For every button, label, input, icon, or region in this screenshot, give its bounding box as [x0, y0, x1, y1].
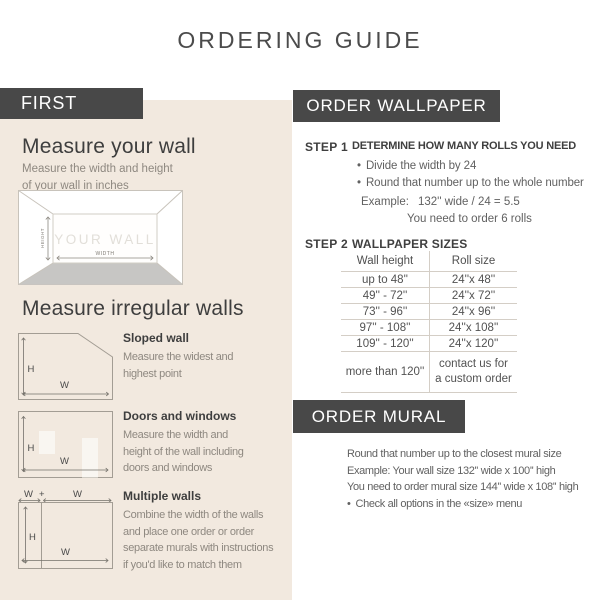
table-row: 49'' - 72'' 24''x 72''	[341, 288, 517, 304]
irregular-walls-heading: Measure irregular walls	[22, 297, 244, 321]
step1-example-result: You need to order 6 rolls	[407, 213, 532, 225]
bullet-icon: •	[357, 177, 361, 189]
doors-windows-item: Doors and windows Measure the width and …	[123, 409, 301, 477]
step1-bullet-1: •Divide the width by 24	[357, 160, 476, 172]
ordering-guide-page: ORDERING GUIDE FIRST ORDER WALLPAPER ORD…	[0, 0, 600, 600]
table-cell: 73'' - 96''	[341, 304, 429, 319]
example-value: 132'' wide / 24 = 5.5	[418, 196, 520, 208]
sloped-wall-item: Sloped wall Measure the widest and highe…	[123, 331, 301, 382]
mural-line: You need to order mural size 144'' wide …	[347, 479, 578, 496]
w-label: W	[24, 489, 33, 500]
table-cell: more than 120''	[341, 352, 429, 392]
mural-instructions: Round that number up to the closest mura…	[347, 446, 578, 512]
first-badge: FIRST	[0, 88, 143, 119]
first-badge-label: FIRST	[21, 93, 77, 114]
mural-bullet-line: •Check all options in the «size» menu	[347, 496, 578, 513]
mural-line: Example: Your wall size 132'' wide x 100…	[347, 463, 578, 480]
table-cell: 24''x 96''	[429, 304, 517, 319]
order-wallpaper-badge: ORDER WALLPAPER	[293, 90, 500, 122]
step2-label: STEP 2	[305, 237, 348, 251]
step1-label: STEP 1	[305, 140, 348, 154]
w-label: W	[73, 489, 82, 500]
h-label: H	[28, 364, 35, 375]
example-label: Example:	[361, 196, 409, 208]
sloped-wall-diagram: H W	[18, 333, 113, 400]
h-label: H	[29, 532, 36, 543]
table-row: 73'' - 96'' 24''x 96''	[341, 304, 517, 320]
page-title: ORDERING GUIDE	[0, 27, 600, 54]
bullet-icon: •	[347, 498, 351, 510]
table-cell: contact us for a custom order	[429, 352, 517, 392]
table-cell: up to 48''	[341, 272, 429, 287]
table-row: 97'' - 108'' 24''x 108''	[341, 320, 517, 336]
order-wallpaper-label: ORDER WALLPAPER	[306, 96, 486, 116]
w-label: W	[60, 380, 69, 391]
step1-bullet-2: •Round that number up to the whole numbe…	[357, 177, 584, 189]
step2-heading: WALLPAPER SIZES	[352, 237, 467, 251]
order-mural-badge: ORDER MURAL	[293, 400, 465, 433]
table-cell: 24''x 120''	[429, 336, 517, 351]
window-shape	[39, 431, 55, 454]
table-row: up to 48'' 24''x 48''	[341, 272, 517, 288]
plus-label: +	[39, 489, 45, 500]
w-label: W	[60, 456, 69, 467]
table-header-cell: Roll size	[429, 251, 517, 271]
height-arrow-label: HEIGHT	[40, 228, 45, 248]
bullet-icon: •	[357, 160, 361, 172]
multiple-walls-item: Multiple walls Combine the width of the …	[123, 489, 301, 573]
step1-heading: DETERMINE HOW MANY ROLLS YOU NEED	[352, 140, 576, 152]
measure-wall-heading: Measure your wall	[22, 135, 196, 159]
mural-line: Round that number up to the closest mura…	[347, 446, 578, 463]
door-shape	[82, 438, 98, 478]
table-row: 109'' - 120'' 24''x 120''	[341, 336, 517, 352]
doors-windows-diagram: H W	[18, 411, 113, 478]
table-cell: 49'' - 72''	[341, 288, 429, 303]
wall-illustration: YOUR WALL HEIGHT WIDTH	[18, 190, 183, 285]
item-description: Measure the width and height of the wall…	[123, 427, 301, 477]
table-cell: 109'' - 120''	[341, 336, 429, 351]
step1-example: Example:132'' wide / 24 = 5.5	[361, 196, 520, 208]
h-label: H	[28, 443, 35, 454]
item-title: Sloped wall	[123, 331, 301, 345]
table-cell: 24''x 72''	[429, 288, 517, 303]
your-wall-label: YOUR WALL	[54, 232, 156, 247]
table-header-cell: Wall height	[341, 251, 429, 271]
item-title: Doors and windows	[123, 409, 301, 423]
item-description: Combine the width of the walls and place…	[123, 507, 301, 573]
width-arrow-label: WIDTH	[96, 251, 115, 257]
item-title: Multiple walls	[123, 489, 301, 503]
w-label: W	[61, 547, 70, 558]
multiple-walls-diagram: W + W H W	[18, 483, 113, 573]
table-cell: 24''x 108''	[429, 320, 517, 335]
item-description: Measure the widest and highest point	[123, 349, 301, 382]
table-cell: 24''x 48''	[429, 272, 517, 287]
table-row: more than 120'' contact us for a custom …	[341, 352, 517, 393]
table-cell: 97'' - 108''	[341, 320, 429, 335]
order-mural-label: ORDER MURAL	[312, 407, 446, 427]
table-header-row: Wall height Roll size	[341, 251, 517, 272]
wallpaper-size-table: Wall height Roll size up to 48'' 24''x 4…	[341, 251, 517, 393]
